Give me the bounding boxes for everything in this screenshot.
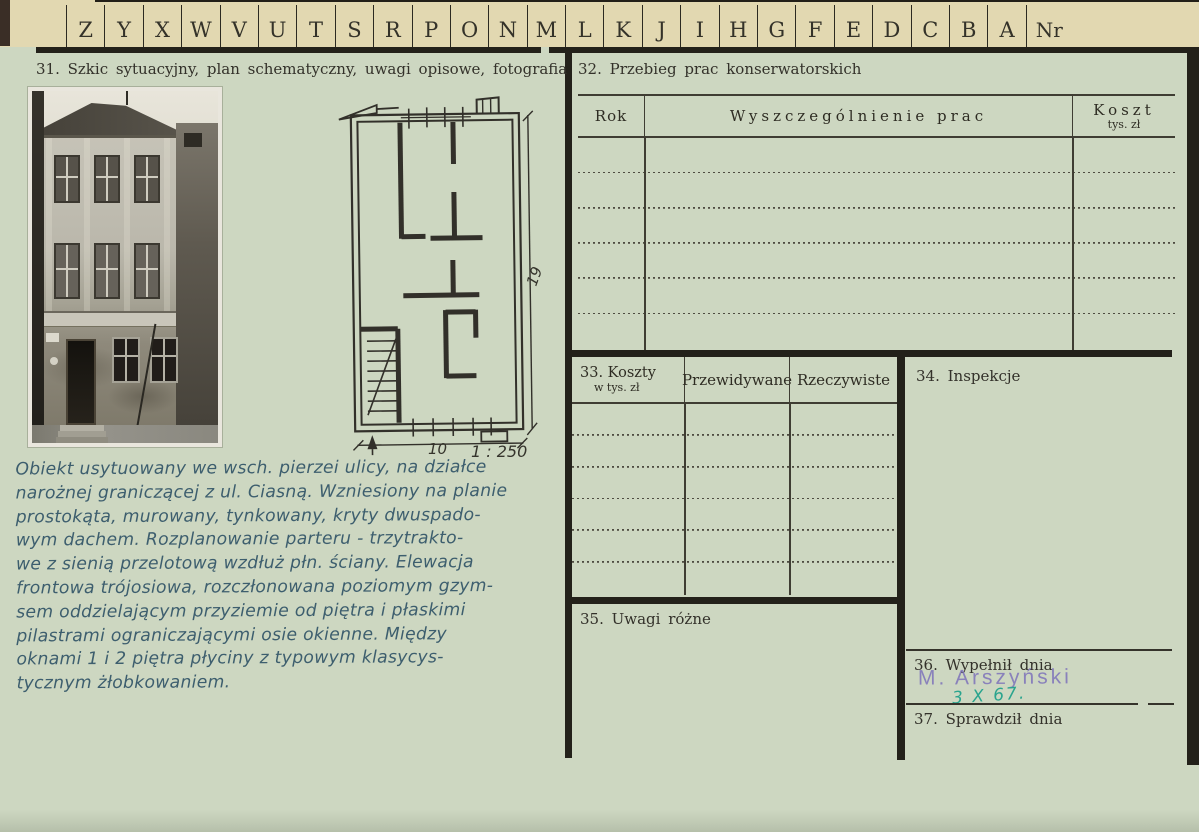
conservation-works-table: Rok Wyszczególnienie prac Koszt tys. zł bbox=[578, 94, 1175, 350]
line-above-36 bbox=[906, 649, 1172, 651]
table33-body bbox=[572, 404, 897, 595]
tab-letter-a: A bbox=[987, 5, 1025, 47]
tab-letter-p: P bbox=[412, 5, 450, 47]
col-header-prace: Wyszczególnienie prac bbox=[644, 96, 1072, 136]
koszt-label: Koszt bbox=[1093, 101, 1154, 119]
koszty-label: 33. Koszty bbox=[580, 365, 684, 381]
notes-line: narożnej graniczącej z ul. Ciasną. Wznie… bbox=[16, 479, 582, 506]
photo-pilaster bbox=[84, 138, 90, 311]
notes-line: frontowa trójosiowa, rozczłonowana pozio… bbox=[16, 575, 582, 602]
divider-35 bbox=[565, 597, 897, 604]
table33-vline bbox=[684, 404, 686, 595]
photo-dormer bbox=[184, 133, 202, 147]
section35-title: 35. Uwagi różne bbox=[580, 610, 711, 628]
photo-window bbox=[54, 243, 80, 299]
top-rule-right bbox=[549, 47, 1199, 53]
photo-ground-window bbox=[112, 337, 140, 383]
table-row bbox=[572, 531, 897, 563]
section37-title: 37. Sprawdził dnia bbox=[914, 710, 1062, 728]
scan-corner-shadow bbox=[0, 0, 10, 46]
tab-letter-n: N bbox=[488, 5, 526, 47]
koszt-sublabel: tys. zł bbox=[1108, 118, 1141, 131]
tab-letter-k: K bbox=[603, 5, 641, 47]
col-header-przewidywane: Przewidywane bbox=[684, 357, 789, 402]
costs-table: 33. Koszty w tys. zł Przewidywane Rzeczy… bbox=[572, 357, 897, 597]
tab-letter-l: L bbox=[565, 5, 603, 47]
divider-33-34 bbox=[897, 350, 905, 760]
table-row bbox=[572, 404, 897, 436]
photo-doorway bbox=[66, 339, 96, 425]
photo-left-shadow bbox=[32, 91, 44, 443]
table33-header: 33. Koszty w tys. zł Przewidywane Rzeczy… bbox=[572, 357, 897, 404]
tab-letter-s: S bbox=[335, 5, 373, 47]
photo-pilaster bbox=[164, 138, 170, 311]
section32-title: 32. Przebieg prac konserwatorskich bbox=[578, 60, 861, 78]
tab-letter-h: H bbox=[719, 5, 757, 47]
tab-letter-r: R bbox=[373, 5, 411, 47]
photo-step bbox=[56, 437, 108, 443]
table32-header: Rok Wyszczególnienie prac Koszt tys. zł bbox=[578, 96, 1175, 138]
col-header-koszty: 33. Koszty w tys. zł bbox=[572, 357, 684, 402]
notes-line: oknami 1 i 2 piętra płyciny z typowym kl… bbox=[16, 646, 582, 673]
building-photo bbox=[28, 87, 222, 447]
tab-letter-y: Y bbox=[104, 5, 142, 47]
notes-line: tycznym żłobkowaniem. bbox=[17, 670, 583, 697]
koszty-sublabel: w tys. zł bbox=[580, 381, 684, 394]
table-row bbox=[578, 173, 1175, 208]
tab-letter-b: B bbox=[949, 5, 987, 47]
tab-letter-x: X bbox=[143, 5, 181, 47]
photo-plaque bbox=[50, 357, 58, 365]
tab-letter-u: U bbox=[258, 5, 296, 47]
photo-street-sign bbox=[46, 333, 59, 342]
photo-cornice bbox=[44, 135, 176, 138]
photo-window bbox=[94, 155, 120, 203]
photo-pilaster bbox=[46, 138, 52, 311]
tab-letter-w: W bbox=[181, 5, 219, 47]
notes-line: pilastrami ograniczającymi osie okienne.… bbox=[16, 622, 582, 649]
tab-nr-label: Nr bbox=[1026, 5, 1104, 47]
table32-body bbox=[578, 138, 1175, 350]
tab-letter-t: T bbox=[296, 5, 334, 47]
table-row bbox=[572, 436, 897, 468]
tab-letter-v: V bbox=[220, 5, 258, 47]
notes-line: prostokąta, murowany, tynkowany, kryty d… bbox=[16, 503, 582, 530]
tab-letter-c: C bbox=[911, 5, 949, 47]
photo-antenna bbox=[126, 91, 128, 105]
tab-letter-o: O bbox=[450, 5, 488, 47]
north-arrow-icon bbox=[339, 105, 377, 120]
tab-letter-d: D bbox=[872, 5, 910, 47]
table-row bbox=[572, 563, 897, 595]
col-header-koszt: Koszt tys. zł bbox=[1072, 96, 1175, 136]
photo-window bbox=[134, 243, 160, 299]
photo-window bbox=[94, 243, 120, 299]
line-above-37 bbox=[906, 703, 1138, 705]
table-row bbox=[578, 279, 1175, 314]
section31-title: 31. Szkic sytuacyjny, plan schematyczny,… bbox=[36, 60, 567, 78]
notes-line: Obiekt usytuowany we wsch. pierzei ulicy… bbox=[15, 456, 581, 483]
plan-dim-height: 19 bbox=[523, 264, 546, 288]
photo-window bbox=[134, 155, 160, 203]
table33-vline bbox=[789, 404, 791, 595]
tab-letter-e: E bbox=[834, 5, 872, 47]
table-row bbox=[572, 499, 897, 531]
tab-letter-z: Z bbox=[66, 5, 104, 47]
photo-neighbor-building bbox=[176, 123, 218, 425]
tab-letter-f: F bbox=[795, 5, 833, 47]
tab-letter-m: M bbox=[527, 5, 565, 47]
photo-window bbox=[54, 155, 80, 203]
notes-line: we z sienią przelotową wzdłuż płn. ścian… bbox=[16, 551, 582, 578]
north-arrow-small-icon bbox=[367, 435, 377, 449]
table-row bbox=[578, 314, 1175, 349]
table-row bbox=[578, 138, 1175, 173]
table-row bbox=[578, 244, 1175, 279]
tab-letter-g: G bbox=[757, 5, 795, 47]
col-header-rzeczywiste: Rzeczywiste bbox=[789, 357, 897, 402]
top-rule-left bbox=[36, 47, 541, 53]
notes-line: sem oddzielającym przyziemie od piętra i… bbox=[16, 598, 582, 625]
handwritten-description: Obiekt usytuowany we wsch. pierzei ulicy… bbox=[15, 456, 582, 697]
stairs-hatching bbox=[367, 339, 397, 415]
divider-32-33 bbox=[565, 350, 1172, 357]
right-edge-rule bbox=[1187, 53, 1199, 765]
table32-vline bbox=[1072, 138, 1074, 350]
tab-letter-i: I bbox=[680, 5, 718, 47]
scan-bottom-shadow bbox=[0, 810, 1199, 832]
floor-plan-sketch: 19 10 1 : 250 bbox=[333, 92, 578, 464]
table32-vline bbox=[644, 138, 646, 350]
photo-pilaster bbox=[124, 138, 130, 311]
photo-ground-window bbox=[150, 337, 178, 383]
table-row bbox=[578, 209, 1175, 244]
col-header-rok: Rok bbox=[578, 96, 644, 136]
scan-edge-line bbox=[95, 0, 1199, 2]
letter-cells: Z Y X W V U T S R P O N M L K J I H G F … bbox=[66, 5, 1104, 47]
line-above-37-short bbox=[1148, 703, 1174, 705]
section34-title: 34. Inspekcje bbox=[916, 367, 1020, 385]
letter-index-strip: Z Y X W V U T S R P O N M L K J I H G F … bbox=[0, 0, 1199, 47]
notes-line: wym dachem. Rozplanowanie parteru - trzy… bbox=[16, 527, 582, 554]
tab-letter-j: J bbox=[642, 5, 680, 47]
table-row bbox=[572, 468, 897, 500]
heritage-record-card: Z Y X W V U T S R P O N M L K J I H G F … bbox=[0, 0, 1199, 832]
